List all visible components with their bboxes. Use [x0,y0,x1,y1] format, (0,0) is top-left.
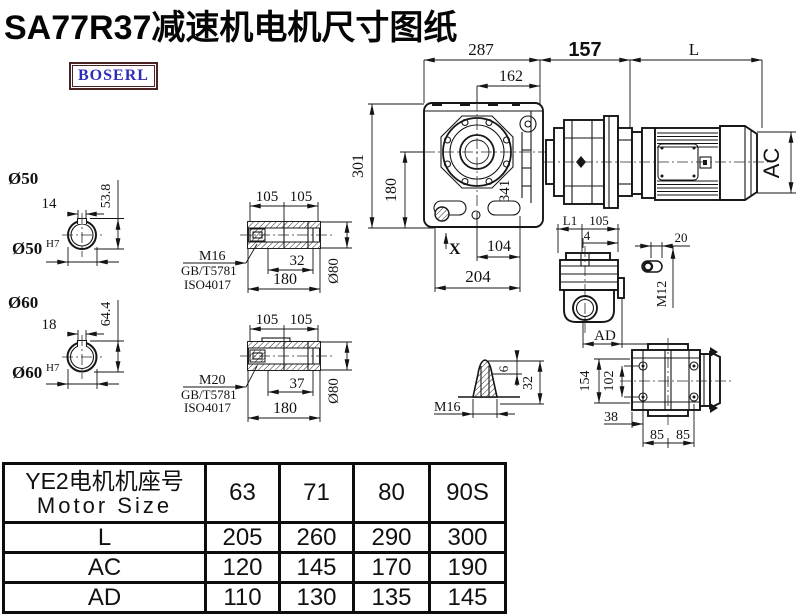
motor-size-table: YE2电机机座号 Motor Size 63 71 80 90S L 205 2… [2,462,507,614]
table-corner-header: YE2电机机座号 Motor Size [4,464,206,523]
plug-thread: M16 [434,400,460,415]
bore-section-50: Ø50 14 53.8 Ø50 H7 [8,169,124,266]
hollow-shaft-detail-1: 105 105 32 180 Ø80 M16 GB/T5781 ISO4017 [181,189,352,293]
shaft1-dim-80: Ø80 [326,258,342,284]
table-row-L: L 205 260 290 300 [4,523,506,553]
column-header-63: 63 [206,464,280,523]
column-header-80: 80 [354,464,430,523]
back-view: 154 102 38 85 85 [578,338,732,448]
dim-AC: AC [759,148,784,179]
dim-85a: 85 [650,428,664,443]
shaft1-std1: GB/T5781 [181,263,237,278]
shaft1-std2: ISO4017 [184,277,231,292]
dim-301: 301 [350,154,367,178]
table-header-row: YE2电机机座号 Motor Size 63 71 80 90S [4,464,506,523]
dim-104: 104 [487,238,511,255]
dim-side-105: 105 [589,213,609,228]
dim-287: 287 [468,40,494,59]
dim-M12: M12 [655,281,670,307]
cell-L-63: 205 [206,523,280,553]
dim-341: 341 [497,180,513,203]
hollow-shaft-detail-2: 105 105 37 180 Ø80 M20 GB/T5781 ISO4017 [181,312,352,422]
dim-20: 20 [675,230,688,245]
column-header-90S: 90S [430,464,506,523]
cell-AD-80: 135 [354,583,430,613]
cell-AC-90S: 190 [430,553,506,583]
dim-X: X [449,241,461,258]
side-aux-view: L1 105 4 AD [556,213,650,348]
cell-AC-71: 145 [280,553,354,583]
shaft1-screw: M16 [199,249,225,264]
cell-L-71: 260 [280,523,354,553]
dim-L1: L1 [563,213,577,228]
cell-AD-63: 110 [206,583,280,613]
header-cn: YE2电机机座号 [5,469,204,493]
bore50-tol: H7 [46,238,60,250]
shaft1-dim-105a: 105 [256,189,279,205]
bore60-tol: H7 [46,362,60,374]
dim-162: 162 [499,68,523,85]
cell-L-80: 290 [354,523,430,553]
column-header-71: 71 [280,464,354,523]
dim-102: 102 [602,371,617,392]
bore50-dia: Ø50 [12,239,42,258]
technical-drawing: 287 162 157 L 301 180 [0,0,800,460]
dim-64.4: 64.4 [99,302,114,327]
row-label-AC: AC [4,553,206,583]
dim-AD: AD [594,328,616,344]
row-label-AD: AD [4,583,206,613]
shaft1-dim-180: 180 [273,271,297,288]
plug-detail: 6 32 M16 [434,352,544,418]
shaft2-dim-105b: 105 [290,312,313,328]
shaft1-dim-105b: 105 [290,189,313,205]
key-detail: 20 M12 [635,230,690,308]
dim-53.8: 53.8 [99,184,114,209]
dim-204: 204 [465,267,491,286]
gearmotor-side-view [544,116,768,208]
gearbox-front-view: 301 180 341 X 104 [350,100,549,292]
bore-section-60: Ø60 18 64.4 Ø60 H7 [8,293,124,389]
cell-L-90S: 300 [430,523,506,553]
dim-L: L [689,40,699,59]
cell-AC-63: 120 [206,553,280,583]
shaft2-dim-37: 37 [290,376,306,392]
dim-18: 18 [42,317,57,333]
dim-14: 14 [42,196,58,212]
drawing-page: { "page": { "title": "SA77R37减速机电机尺寸图纸",… [0,0,800,613]
ac-dimension: AC [757,132,796,193]
table-row-AC: AC 120 145 170 190 [4,553,506,583]
shaft2-dim-80: Ø80 [326,378,342,404]
table-row-AD: AD 110 130 135 145 [4,583,506,613]
cell-AD-90S: 145 [430,583,506,613]
dim-38: 38 [604,410,618,425]
shaft2-std2: ISO4017 [184,400,231,415]
dim-157: 157 [568,39,601,61]
bore60-label: Ø60 [8,293,38,312]
row-label-L: L [4,523,206,553]
dim-85b: 85 [676,428,690,443]
dim-plug-32: 32 [521,376,536,390]
bore50-label: Ø50 [8,169,38,188]
shaft2-screw: M20 [199,373,225,388]
cell-AC-80: 170 [354,553,430,583]
dim-180: 180 [383,178,400,202]
bore60-dia: Ø60 [12,363,42,382]
shaft2-dim-180: 180 [273,400,297,417]
dim-154: 154 [578,371,593,392]
header-en: Motor Size [5,494,204,517]
dim-6: 6 [496,365,511,372]
shaft2-dim-105a: 105 [256,312,279,328]
shaft1-dim-32: 32 [290,253,305,269]
dim-4: 4 [584,228,591,243]
cell-AD-71: 130 [280,583,354,613]
